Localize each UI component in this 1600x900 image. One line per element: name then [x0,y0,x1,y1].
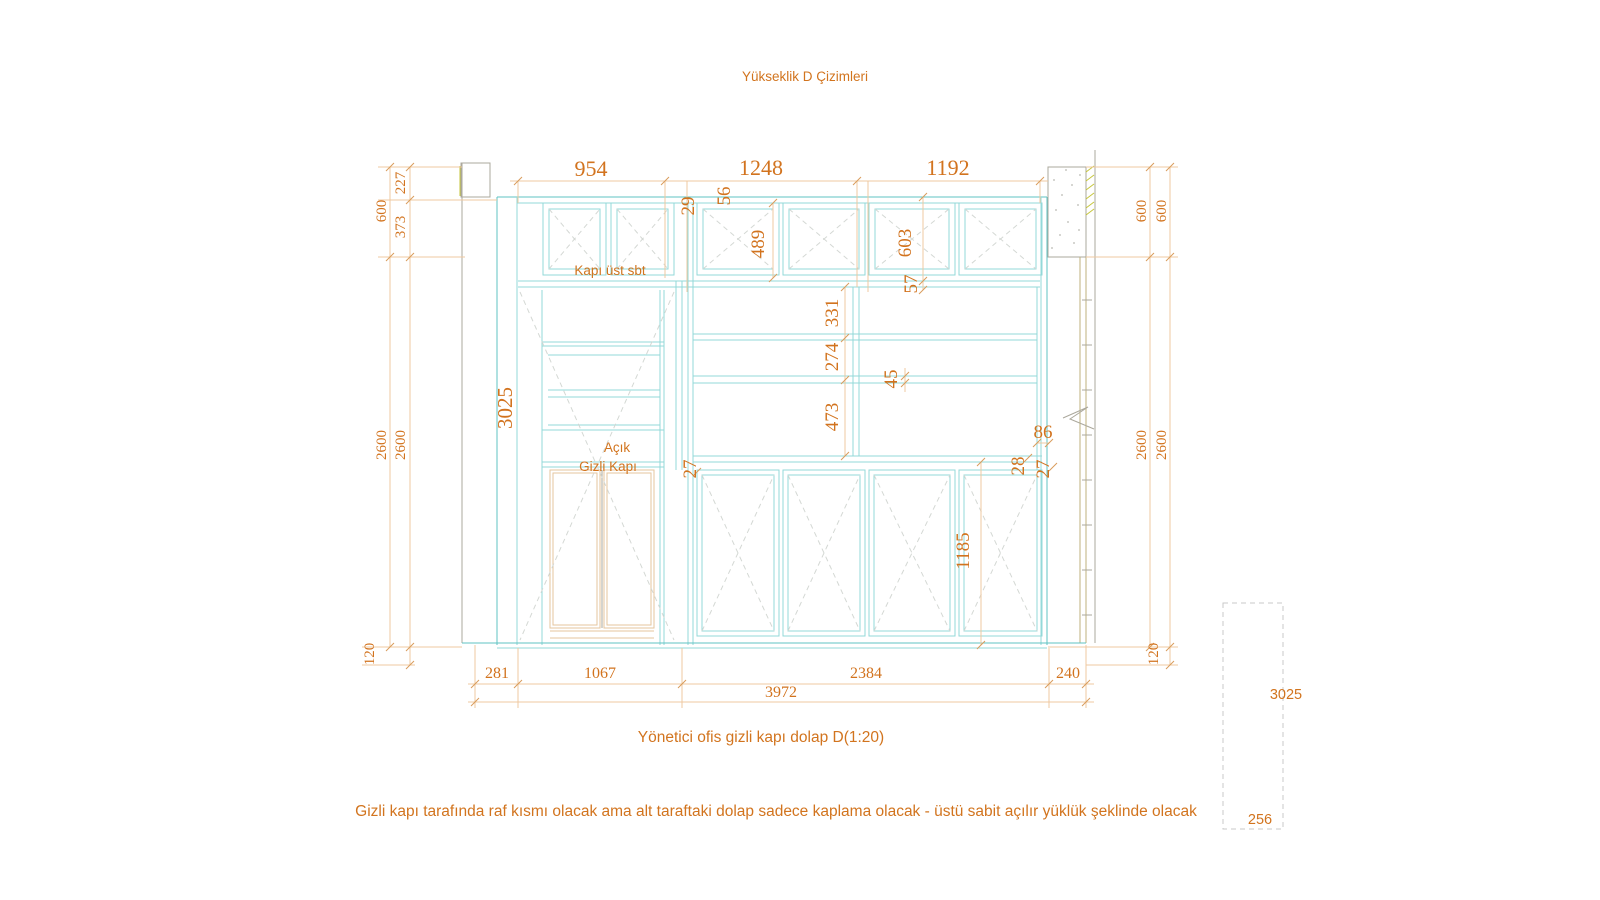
dim-left-373: 373 [393,216,409,239]
concrete-stipple [1051,169,1081,249]
label-open-shelf: Açık [604,440,631,455]
label-hidden-door: Gizli Kapı [579,459,637,474]
cabinet-linework [462,197,1086,648]
side-dim-256: 256 [1248,812,1272,828]
dim-1067: 1067 [584,665,616,682]
dim-954: 954 [575,156,608,181]
dim-1192: 1192 [926,155,969,180]
dim-2384: 2384 [850,665,882,682]
dim-left-2600-a: 2600 [374,430,390,460]
dim-331: 331 [822,299,843,328]
drawing-note: Gizli kapı tarafında raf kısmı olacak am… [355,803,1197,820]
side-section-outline [1223,603,1283,829]
dim-3972: 3972 [765,684,797,701]
dim-489: 489 [748,230,769,259]
dim-57: 57 [901,275,922,294]
drawing-caption: Yönetici ofis gizli kapı dolap D(1:20) [638,729,884,746]
dim-left-2600-b: 2600 [393,430,409,460]
dim-left-3025: 3025 [493,387,517,429]
side-dim-3025: 3025 [1270,687,1302,703]
dim-56: 56 [714,187,735,206]
dim-27-right: 27 [1033,460,1054,479]
hidden-door-plinth [550,631,654,638]
insulation-hatch [1086,166,1094,215]
drawing-title: Yükseklik D Çizimleri [742,69,868,84]
label-upper-door: Kapı üst sbt [574,263,646,278]
cad-drawing: Yükseklik D Çizimleri 954 1248 1192 600 … [0,0,1600,900]
dim-473: 473 [822,403,843,432]
left-soffit-section [461,163,490,197]
dim-1185: 1185 [953,532,974,569]
dim-right-600-b: 600 [1154,200,1170,223]
dimension-lines [362,163,1178,708]
dim-281: 281 [485,665,509,682]
dim-left-120: 120 [362,643,378,666]
dim-29: 29 [678,197,699,216]
dim-240: 240 [1056,665,1080,682]
wall-tick-marks [1082,300,1092,615]
dim-27-rail: 27 [680,460,701,479]
drawing-canvas: Yükseklik D Çizimleri 954 1248 1192 600 … [0,0,1600,900]
hidden-door-panels [550,470,654,638]
wall-break-symbol [1063,407,1094,429]
dim-right-120: 120 [1146,643,1162,666]
main-section-face [688,203,693,645]
dim-left-600: 600 [374,200,390,223]
dim-28: 28 [1008,457,1029,476]
dim-45: 45 [881,370,902,389]
dim-86: 86 [1034,422,1053,443]
dim-1248: 1248 [739,155,783,180]
dim-left-227: 227 [393,171,409,194]
dim-right-600-a: 600 [1134,200,1150,223]
dim-274: 274 [822,342,843,371]
dim-right-2600-a: 2600 [1134,430,1150,460]
dim-603: 603 [895,229,916,258]
dim-right-2600-b: 2600 [1154,430,1170,460]
upper-band-rail [518,281,1040,287]
lower-door-panels [697,470,1042,636]
middle-shelves [693,334,1042,462]
